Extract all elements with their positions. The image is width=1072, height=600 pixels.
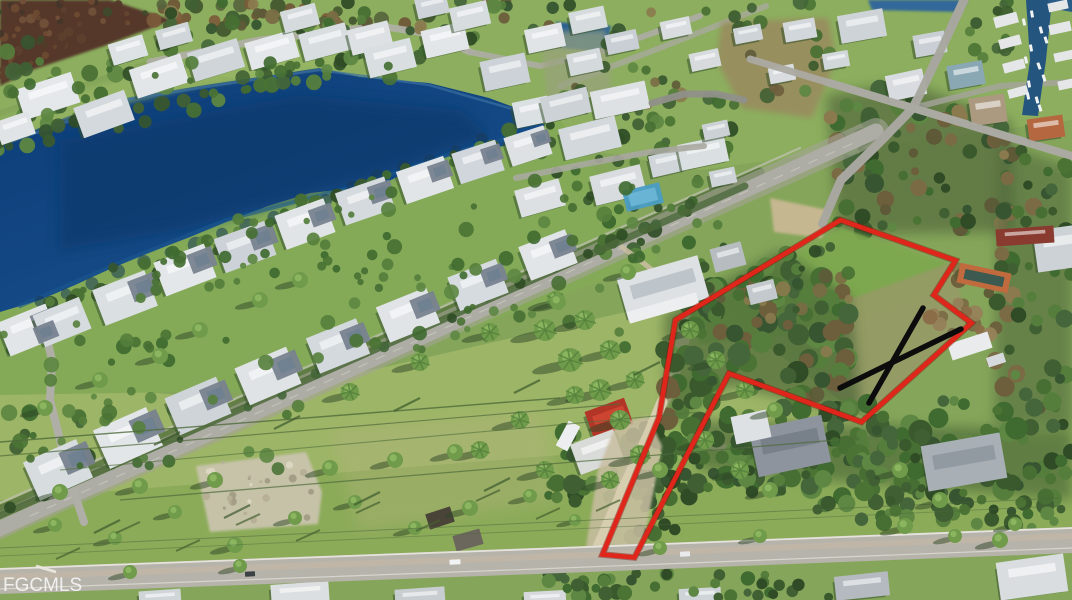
svg-text:FGCMLS: FGCMLS — [3, 575, 82, 596]
